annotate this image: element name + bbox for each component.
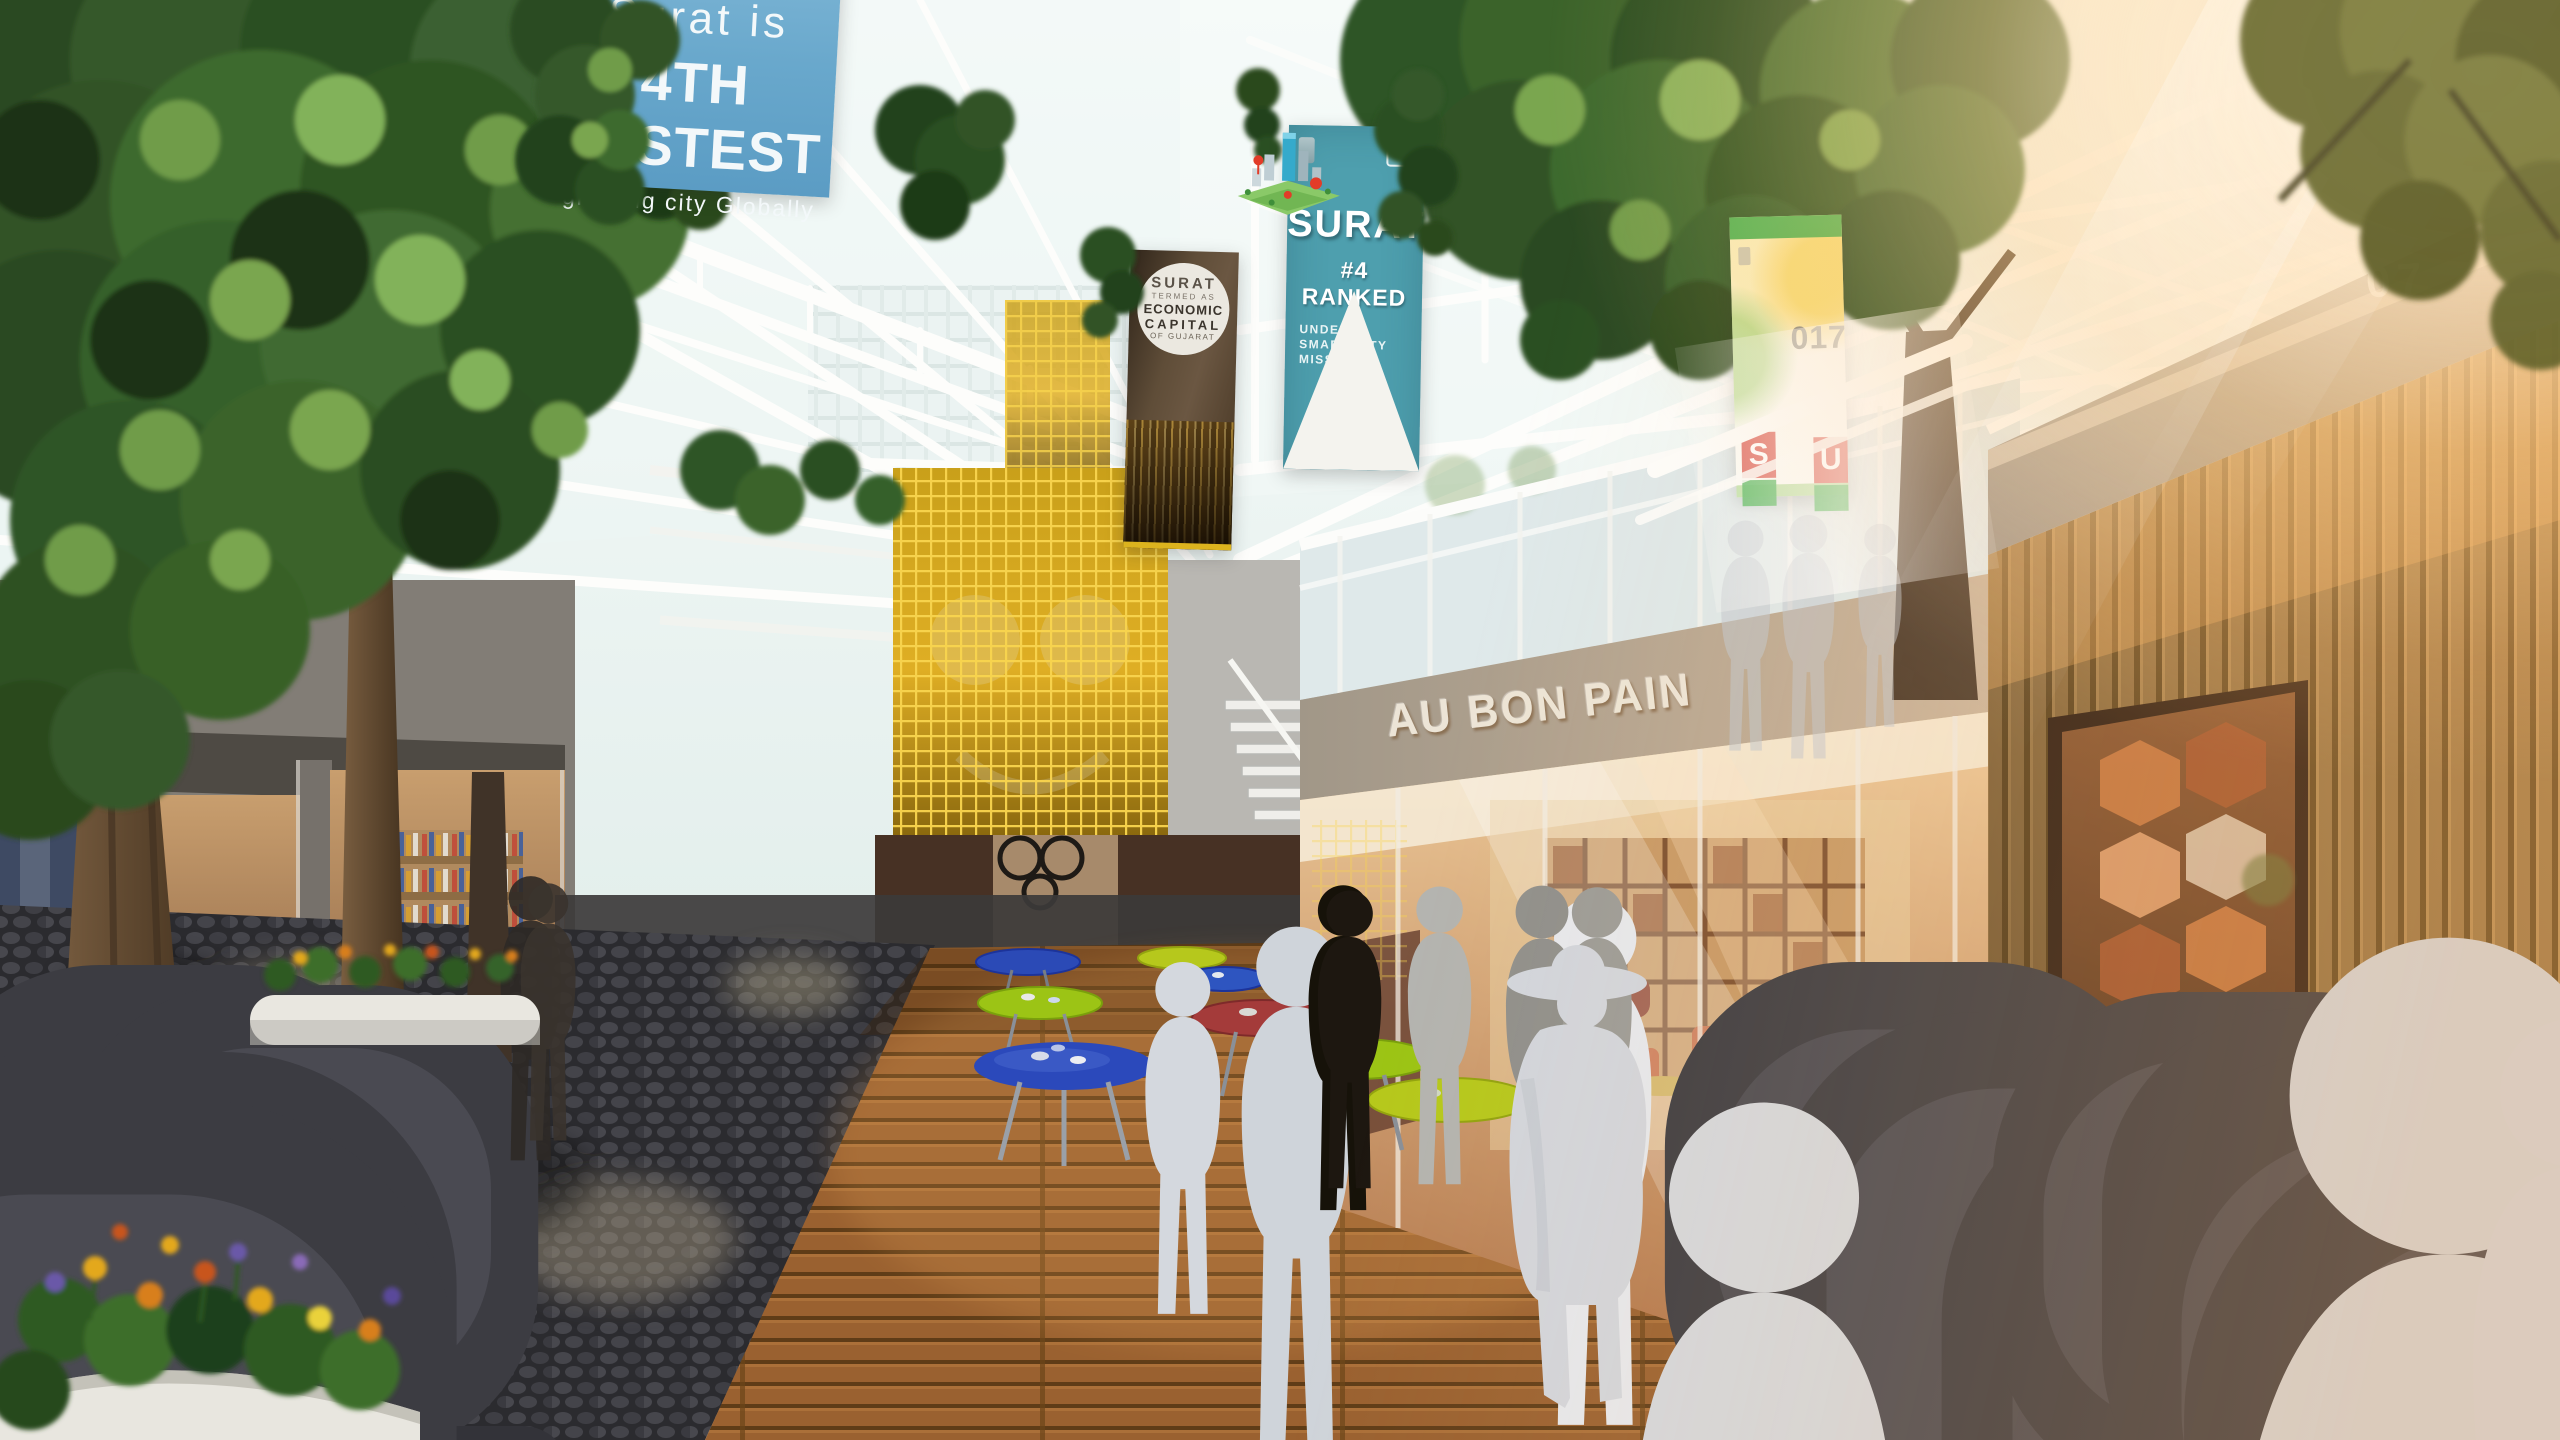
backlit-tree-top-right	[0, 0, 2560, 1440]
atrium-scene: Surat is 4TH FASTEST growing city Global…	[0, 0, 2560, 1440]
